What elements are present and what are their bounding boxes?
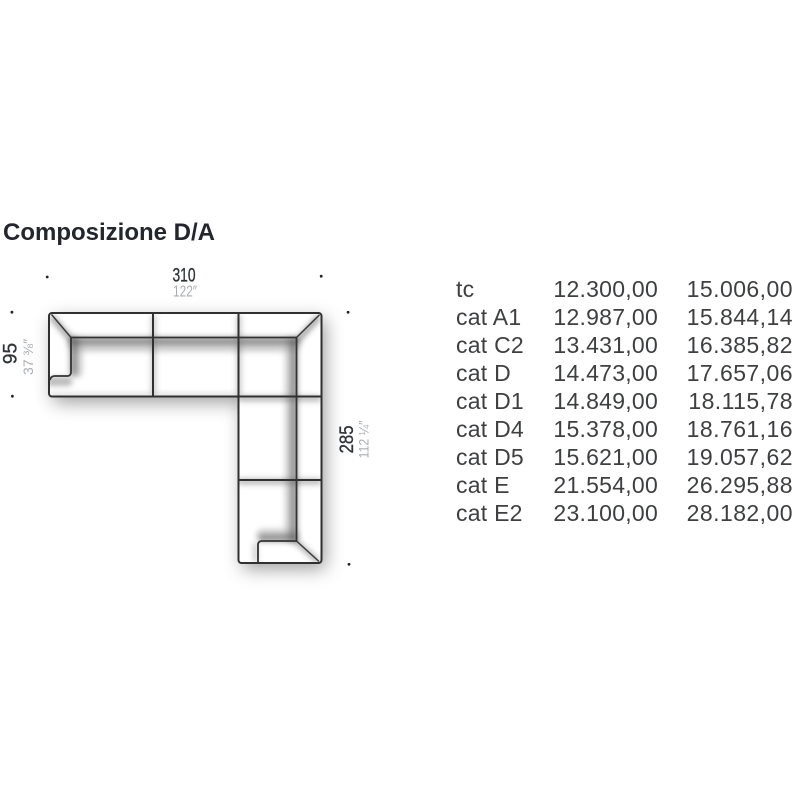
svg-text:37 ⅜″: 37 ⅜″ [20, 339, 36, 375]
svg-text:112 ¼″: 112 ¼″ [356, 420, 372, 458]
svg-text:95: 95 [1, 343, 22, 364]
svg-text:122″: 122″ [173, 284, 197, 301]
